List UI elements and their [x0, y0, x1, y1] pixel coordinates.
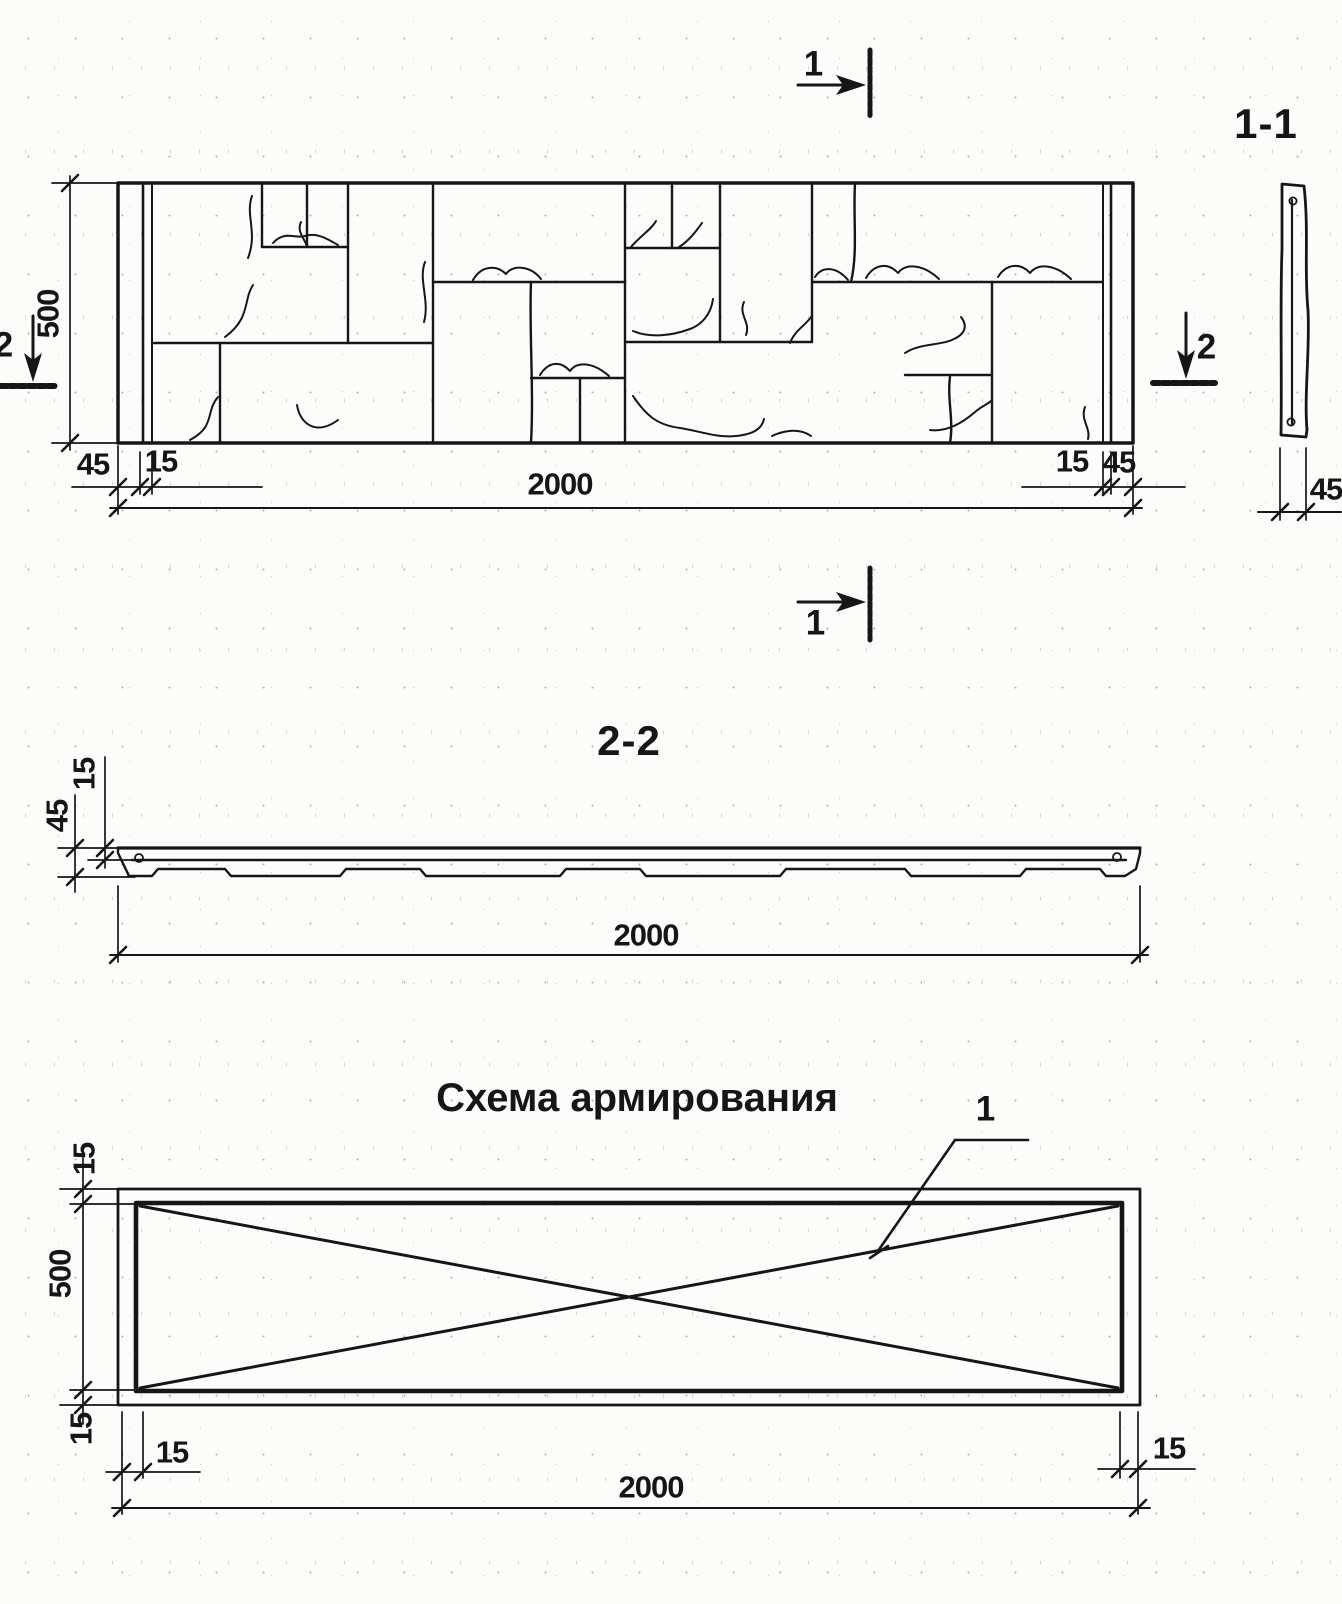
- section-mark-2-left-label: 2: [0, 328, 12, 363]
- reinforcement-cover-top-dim: 15: [69, 1143, 100, 1175]
- elevation-joint-left-dim: 15: [145, 446, 177, 477]
- section-1-1-linework: [1258, 184, 1341, 520]
- elevation-joint-right-dim: 15: [1056, 446, 1088, 477]
- reinforcement-callout-label: 1: [976, 1092, 994, 1127]
- section-2-2-width-dim: 2000: [614, 920, 679, 951]
- reinforcement-width-dim: 2000: [619, 1472, 684, 1503]
- elevation-dimensions: [52, 175, 1185, 516]
- section-2-2-title: 2-2: [597, 720, 661, 762]
- section-2-2-thickness-dim: 45: [42, 800, 73, 832]
- section-mark-1-bottom-label: 1: [806, 606, 824, 641]
- elevation-stone-cracks: [190, 196, 1089, 440]
- elevation-edge-left-dim: 45: [77, 449, 109, 480]
- drawing-sheet: 500 45 15 2000 15 45 1 1 2 2 1-1 45 2-2 …: [0, 0, 1342, 1604]
- elevation-height-dim: 500: [33, 290, 64, 339]
- reinforcement-title: Схема армирования: [436, 1078, 838, 1118]
- reinforcement-cover-bottom-dim: 15: [66, 1413, 97, 1445]
- section-1-1-thickness-dim: 45: [1310, 474, 1342, 505]
- section-mark-1-top-label: 1: [804, 47, 822, 82]
- reinforcement-height-dim: 500: [45, 1250, 76, 1299]
- section-1-1-title: 1-1: [1234, 103, 1298, 145]
- section-2-2-facing-dim: 15: [69, 758, 100, 790]
- elevation-stone-joints: [152, 183, 1103, 443]
- elevation-width-dim: 2000: [528, 469, 593, 500]
- section-mark-2-right-label: 2: [1197, 330, 1215, 365]
- reinforcement-cover-left-dim: 15: [156, 1437, 188, 1468]
- drawing-linework: [0, 0, 1342, 1604]
- reinforcement-cover-right-dim: 15: [1153, 1433, 1185, 1464]
- elevation-edge-right-dim: 45: [1103, 447, 1135, 478]
- reinforcement-linework: [60, 1140, 1195, 1516]
- section-2-2-linework: [58, 757, 1148, 963]
